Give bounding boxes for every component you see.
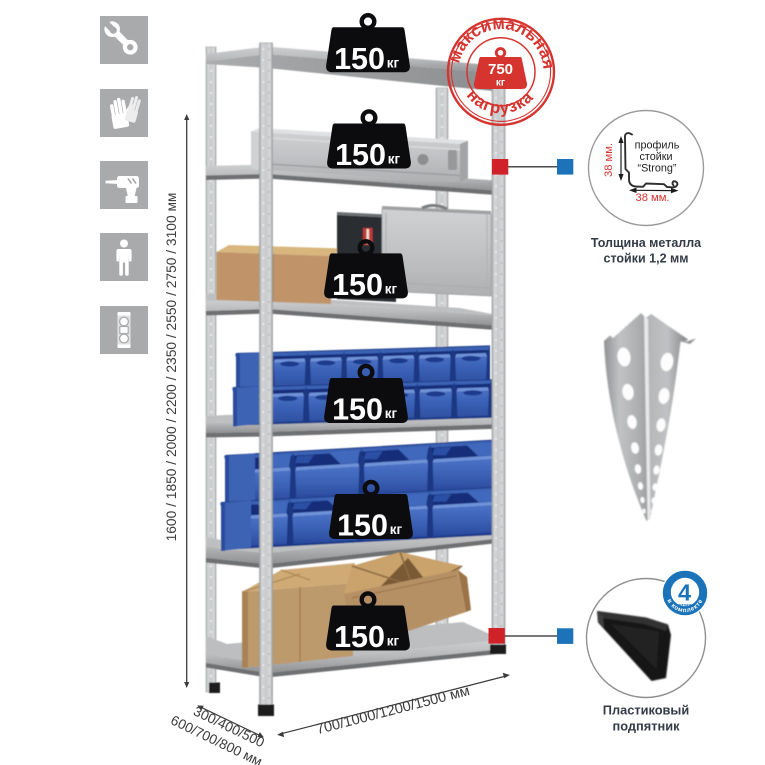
svg-text:Толщина металла: Толщина металла [591, 236, 702, 250]
svg-text:700/1000/1200/1500 мм: 700/1000/1200/1500 мм [314, 683, 471, 738]
svg-text:750: 750 [488, 61, 513, 78]
svg-text:1600 / 1850 / 2000 / 2200 / 23: 1600 / 1850 / 2000 / 2200 / 2350 / 2550 … [164, 193, 179, 542]
svg-text:стойки 1,2 мм: стойки 1,2 мм [604, 252, 689, 266]
svg-text:38 мм.: 38 мм. [635, 192, 669, 204]
svg-text:стойки: стойки [639, 151, 672, 163]
svg-text:подпятник: подпятник [613, 719, 681, 734]
svg-text:кг: кг [496, 78, 505, 89]
svg-text:“Strong”: “Strong” [637, 163, 676, 175]
svg-text:Пластиковый: Пластиковый [603, 703, 689, 718]
svg-text:38 мм.: 38 мм. [603, 143, 615, 177]
svg-text:профиль: профиль [635, 140, 680, 152]
